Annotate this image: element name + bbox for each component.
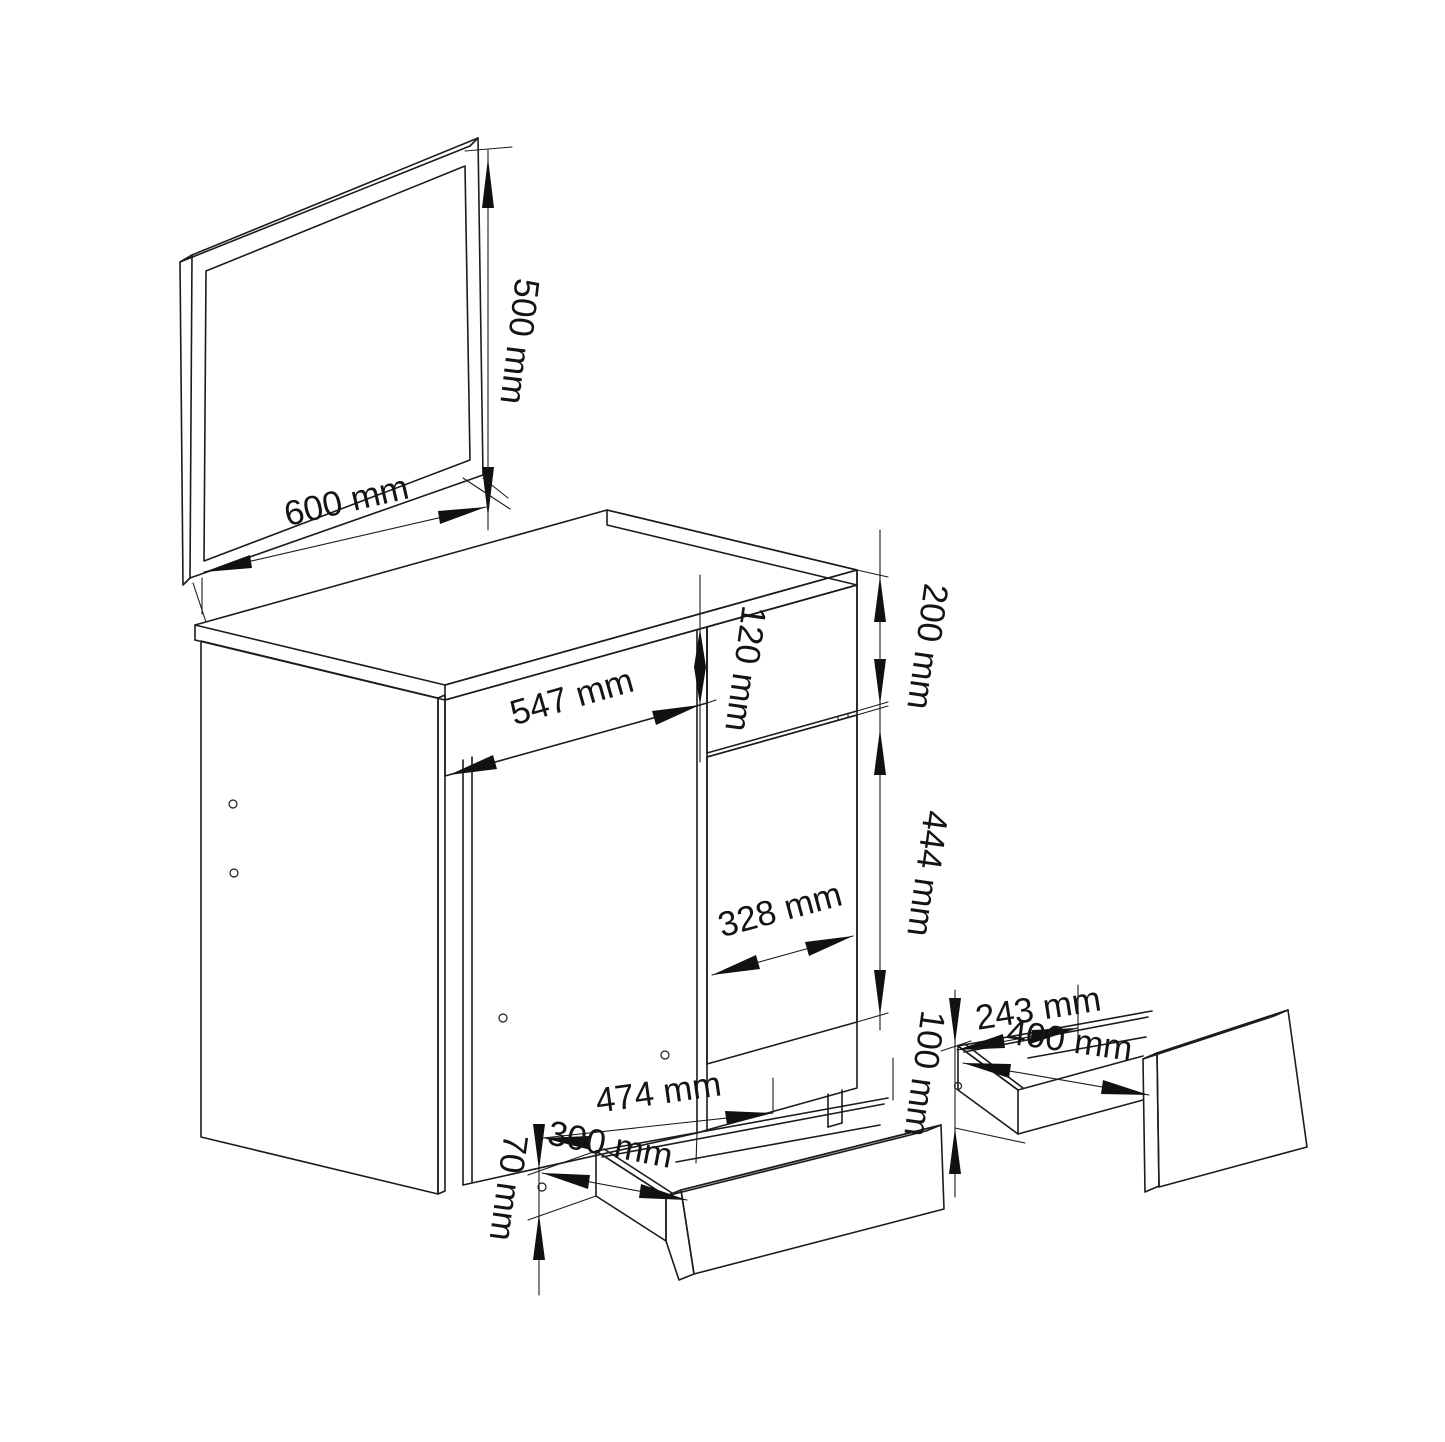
dim-label-wide-drawer-depth: 300 mm — [544, 1114, 676, 1176]
left-side-panel — [201, 641, 438, 1194]
back-panel-hole — [661, 1051, 669, 1059]
wide-drawer-front-panel — [681, 1125, 944, 1274]
desk-top-front-edge — [445, 570, 857, 700]
dim-label-mirror-height: 500 mm — [492, 276, 546, 406]
desk-top-right-edge — [607, 510, 857, 585]
diagram-canvas: 600 mm500 mm547 mm120 mm200 mm444 mm328 … — [0, 0, 1445, 1442]
dim-label-drawer-front-height: 200 mm — [899, 581, 955, 712]
dim-pedestal-right — [857, 530, 888, 1030]
shelf-pin-hole — [229, 800, 237, 808]
dim-label-pedestal-drawer-front: 100 mm — [896, 1008, 952, 1139]
furniture-dimension-diagram: 600 mm500 mm547 mm120 mm200 mm444 mm328 … — [0, 0, 1445, 1442]
dim-label-door-width: 328 mm — [714, 875, 846, 945]
dim-label-door-height: 444 mm — [899, 808, 955, 939]
shelf-pin-hole — [230, 869, 238, 877]
dim-label-apron-height: 120 mm — [717, 603, 773, 734]
dim-label-pedestal-drawer-width: 400 mm — [1004, 1013, 1135, 1069]
left-side-panel-front-edge — [438, 695, 445, 1194]
back-panel-hole — [499, 1014, 507, 1022]
dim-label-mirror-width: 600 mm — [280, 468, 412, 534]
dim-label-wide-drawer-side: 70 mm — [482, 1132, 536, 1243]
dim-label-knee-space-width: 547 mm — [506, 661, 638, 733]
dim-label-wide-drawer-width: 474 mm — [593, 1065, 724, 1121]
pedestal-drawer-front-panel — [1157, 1010, 1307, 1187]
pedestal-drawer-side — [958, 1046, 1018, 1134]
